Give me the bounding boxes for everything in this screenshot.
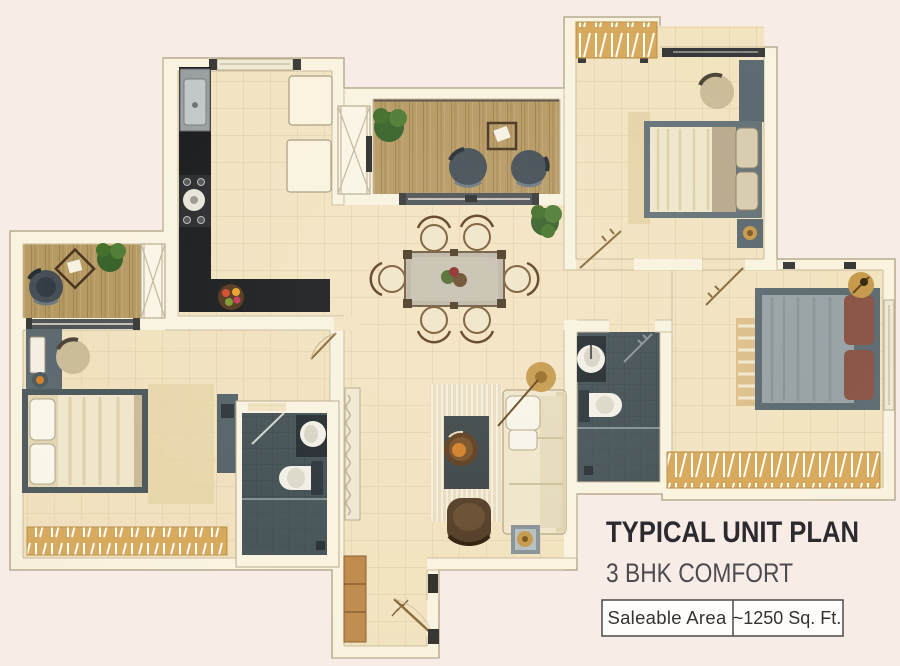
- svg-text:TYPICAL UNIT PLAN: TYPICAL UNIT PLAN: [606, 516, 859, 549]
- svg-text:~1250 Sq. Ft.: ~1250 Sq. Ft.: [733, 608, 842, 628]
- svg-text:3 BHK COMFORT: 3 BHK COMFORT: [606, 558, 793, 588]
- svg-text:Saleable Area: Saleable Area: [607, 607, 727, 628]
